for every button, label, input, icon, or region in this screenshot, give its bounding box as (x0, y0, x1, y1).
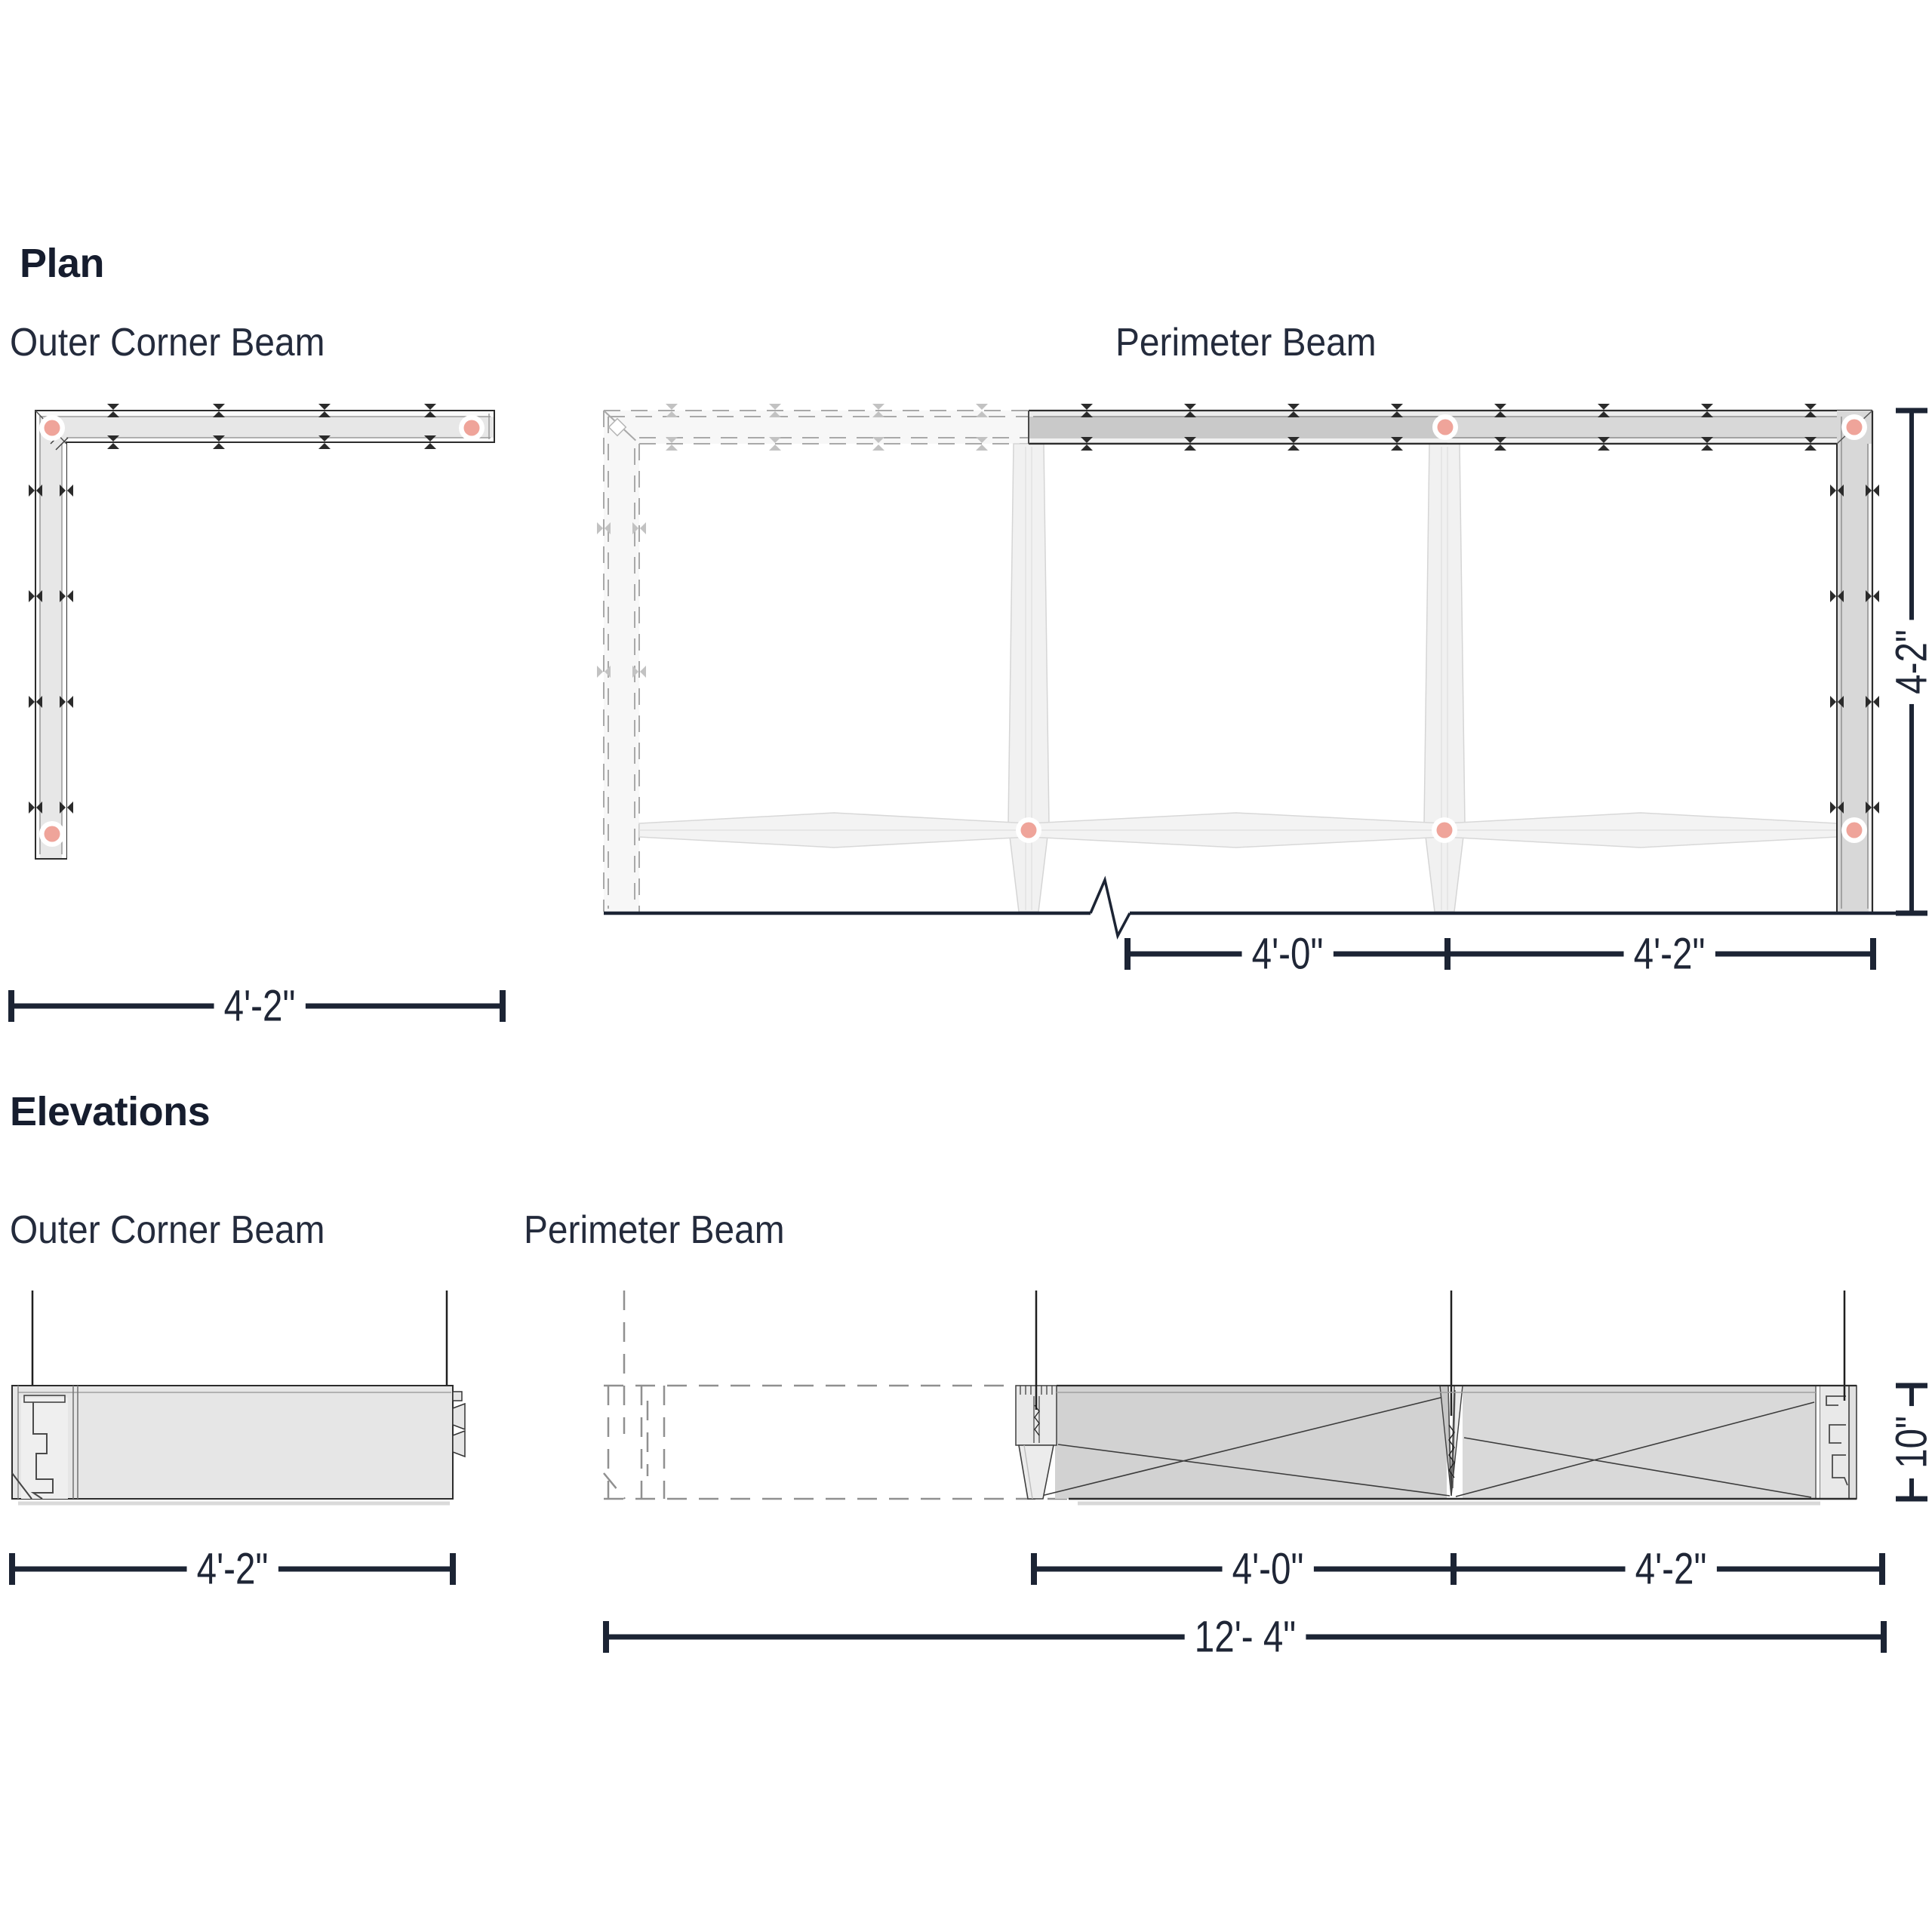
right-end-module (1816, 1386, 1857, 1499)
ghost-elevation-segment (604, 1291, 1069, 1499)
plan-bay1-dim: 4'-0" (1242, 929, 1334, 980)
elevation-overall-dim: 12'- 4" (1185, 1612, 1306, 1663)
plan-depth-dim: 4-2" (1887, 620, 1932, 704)
elevation-perimeter-beam (604, 1291, 1857, 1503)
plan-corner-width-dim: 4'-2" (214, 981, 306, 1032)
plan-outer-corner-beam (29, 404, 494, 859)
elevation-bay1-dim: 4'-0" (1223, 1544, 1314, 1595)
drawing-sheet: Plan Outer Corner Beam Perimeter Beam El… (0, 0, 1932, 1932)
elevation-bay2-dim: 4'-2" (1626, 1544, 1717, 1595)
plan-bay2-dim: 4'-2" (1624, 929, 1715, 980)
elevation-height-dim: 10" (1887, 1406, 1932, 1478)
elevation-perimeter-label: Perimeter Beam (524, 1207, 785, 1253)
elevation-outer-corner-label: Outer Corner Beam (10, 1207, 325, 1253)
node-markers-plan (39, 414, 1867, 847)
end-teeth (453, 1392, 465, 1457)
plan-section-heading: Plan (20, 240, 104, 287)
plan-perimeter-label: Perimeter Beam (1115, 320, 1377, 365)
plan-perimeter-beam (597, 404, 1912, 936)
plan-outer-corner-label: Outer Corner Beam (10, 320, 325, 365)
elevation-outer-corner-beam (12, 1291, 465, 1503)
break-symbol (1091, 880, 1130, 936)
elevation-corner-width-dim: 4'-2" (187, 1544, 278, 1595)
elevations-section-heading: Elevations (10, 1088, 210, 1135)
